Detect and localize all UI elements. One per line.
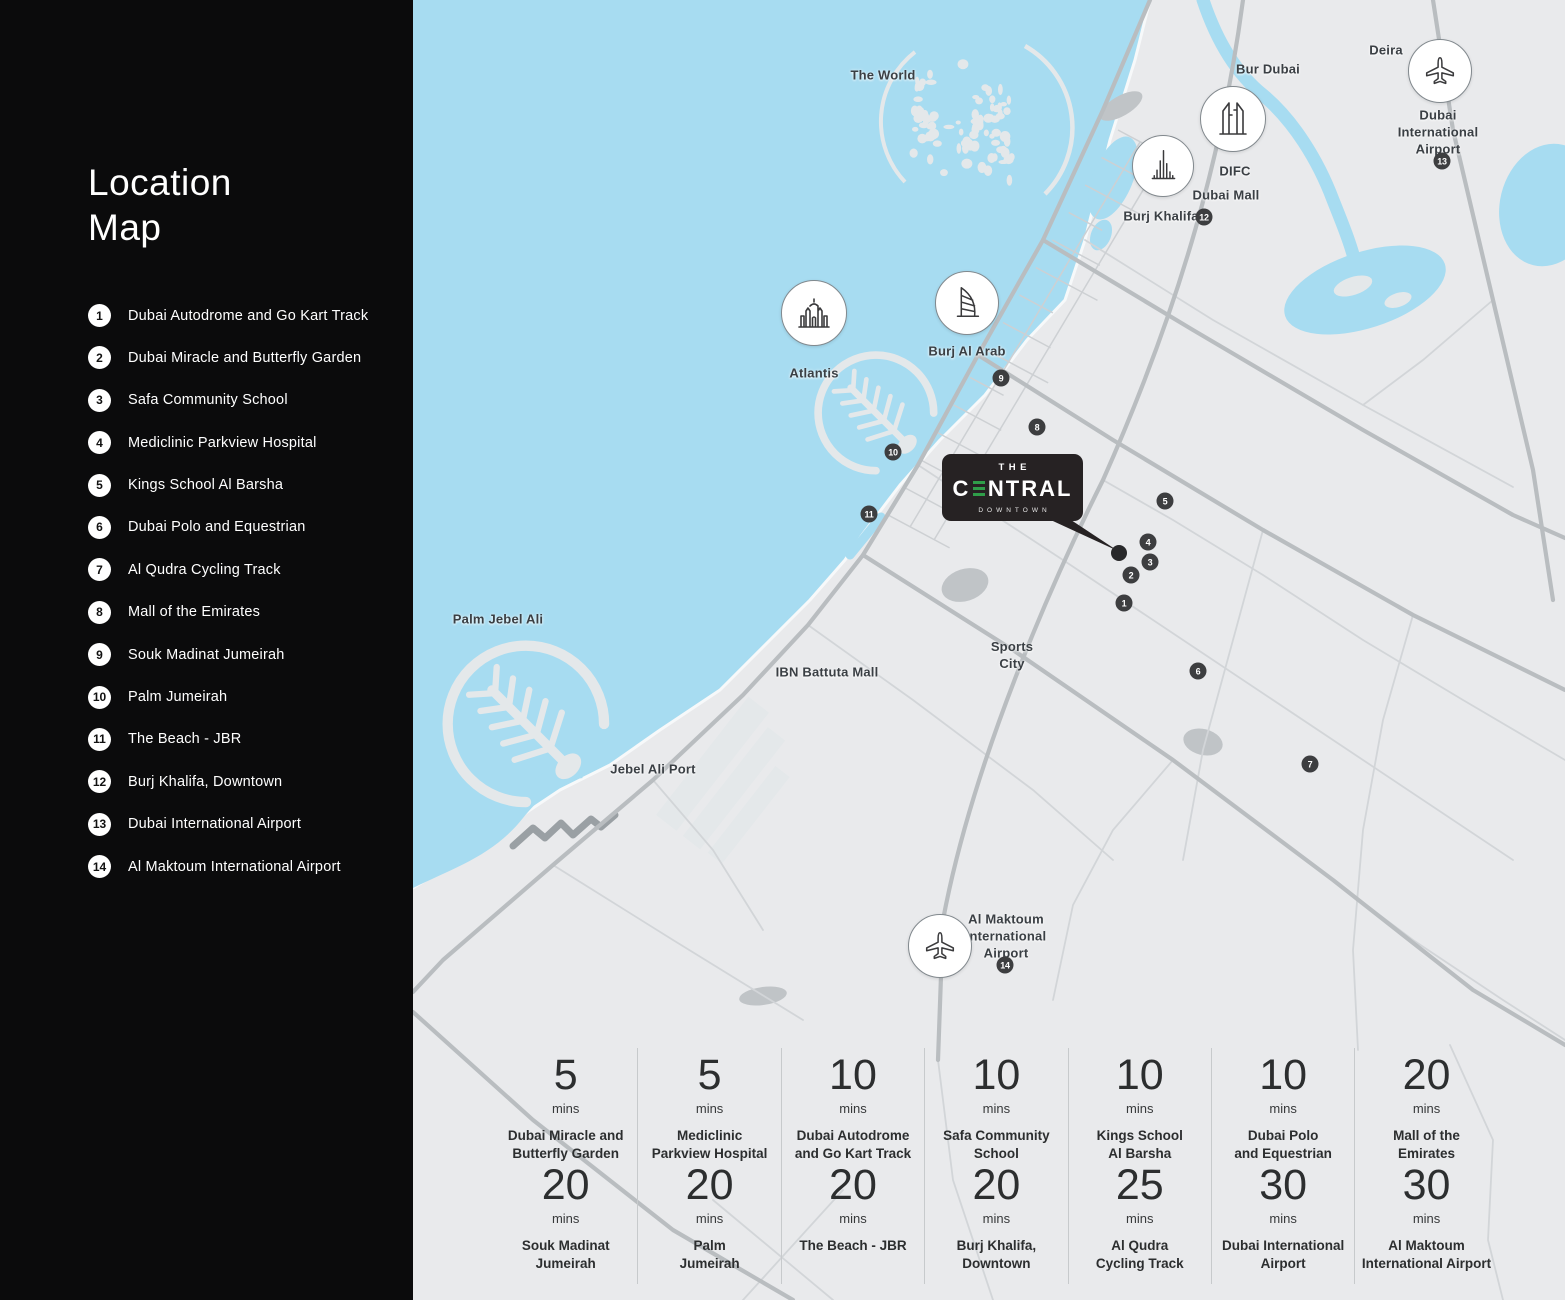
travel-time-destination: Dubai Polo and Equestrian <box>1216 1127 1350 1162</box>
legend-item: 3Safa Community School <box>88 389 368 412</box>
legend-item-number: 14 <box>88 855 111 878</box>
map-label: IBN Battuta Mall <box>776 665 879 682</box>
map-label: Jebel Ali Port <box>610 762 695 779</box>
location-map: The WorldDeiraBur DubaiDIFCDubai MallBur… <box>413 0 1565 1300</box>
map-label: Deira <box>1369 43 1403 60</box>
map-marker-7: 7 <box>1302 756 1319 773</box>
map-label: Dubai International Airport <box>1398 108 1479 159</box>
travel-time-unit: mins <box>786 1101 920 1116</box>
legend-item-number: 1 <box>88 304 111 327</box>
travel-time-value: 10 <box>786 1054 920 1097</box>
burj-al-arab-sail-icon <box>935 271 999 335</box>
travel-time-cell: 10minsKings School Al Barsha <box>1068 1048 1211 1174</box>
page: Location Map 1Dubai Autodrome and Go Kar… <box>0 0 1565 1300</box>
central-logo-downtown: DOWNTOWN <box>974 507 1050 514</box>
travel-time-unit: mins <box>1216 1101 1350 1116</box>
travel-time-unit: mins <box>642 1211 776 1226</box>
map-label: Bur Dubai <box>1236 62 1300 79</box>
legend-item-number: 12 <box>88 770 111 793</box>
project-pin-dot <box>1111 545 1127 561</box>
legend-item: 7Al Qudra Cycling Track <box>88 558 368 581</box>
central-logo-callout: THE C NTRAL DOWNTOWN <box>942 454 1083 521</box>
map-marker-9: 9 <box>993 370 1010 387</box>
atlantis-palace-icon <box>781 280 847 346</box>
travel-time-destination: Palm Jumeirah <box>642 1237 776 1272</box>
central-logo-name-post: NTRAL <box>988 476 1073 502</box>
airplane-icon <box>1408 39 1472 103</box>
legend-item-number: 13 <box>88 813 111 836</box>
travel-time-value: 5 <box>642 1054 776 1097</box>
legend-item-label: Al Maktoum International Airport <box>128 859 341 875</box>
legend-item: 9Souk Madinat Jumeirah <box>88 643 368 666</box>
legend-item-label: Mediclinic Parkview Hospital <box>128 435 317 451</box>
travel-time-unit: mins <box>498 1211 633 1226</box>
legend-item: 11The Beach - JBR <box>88 728 368 751</box>
map-label: Palm Jebel Ali <box>453 612 543 629</box>
map-marker-1: 1 <box>1116 595 1133 612</box>
difc-towers-icon <box>1200 86 1266 152</box>
travel-times-row: 20minsSouk Madinat Jumeirah20minsPalm Ju… <box>494 1158 1498 1284</box>
central-logo-name: C NTRAL <box>953 476 1073 502</box>
travel-time-destination: Mediclinic Parkview Hospital <box>642 1127 776 1162</box>
legend-item-label: Dubai International Airport <box>128 816 301 832</box>
legend-item-number: 9 <box>88 643 111 666</box>
legend-item-label: Dubai Autodrome and Go Kart Track <box>128 308 368 324</box>
travel-time-cell: 30minsAl Maktoum International Airport <box>1354 1158 1497 1284</box>
legend-item-label: Al Qudra Cycling Track <box>128 562 281 578</box>
legend-item: 1Dubai Autodrome and Go Kart Track <box>88 304 368 327</box>
legend-item-number: 3 <box>88 389 111 412</box>
travel-time-value: 20 <box>929 1164 1063 1207</box>
sidebar: Location Map 1Dubai Autodrome and Go Kar… <box>0 0 413 1300</box>
travel-time-destination: The Beach - JBR <box>786 1237 920 1255</box>
map-label: Al Maktoum International Airport <box>966 912 1047 963</box>
travel-time-destination: Souk Madinat Jumeirah <box>498 1237 633 1272</box>
legend-item: 6Dubai Polo and Equestrian <box>88 516 368 539</box>
travel-time-destination: Burj Khalifa, Downtown <box>929 1237 1063 1272</box>
map-marker-4: 4 <box>1140 534 1157 551</box>
map-label: Sports City <box>991 639 1033 673</box>
legend-item-number: 8 <box>88 601 111 624</box>
map-marker-13: 13 <box>1434 153 1451 170</box>
travel-time-unit: mins <box>642 1101 776 1116</box>
legend-item-label: Dubai Polo and Equestrian <box>128 519 306 535</box>
map-marker-6: 6 <box>1190 663 1207 680</box>
travel-times-grid: 5minsDubai Miracle and Butterfly Garden5… <box>494 1048 1498 1288</box>
travel-time-unit: mins <box>1073 1101 1207 1116</box>
map-label: Burj Khalifa <box>1123 209 1198 226</box>
travel-time-cell: 20minsSouk Madinat Jumeirah <box>494 1158 637 1284</box>
map-marker-5: 5 <box>1157 493 1174 510</box>
map-marker-11: 11 <box>861 506 878 523</box>
map-label: Dubai Mall <box>1192 188 1259 205</box>
central-logo-e-bars-icon <box>973 481 986 495</box>
travel-time-unit: mins <box>1359 1211 1493 1226</box>
legend-item-label: Souk Madinat Jumeirah <box>128 647 285 663</box>
legend-item-label: Palm Jumeirah <box>128 689 227 705</box>
travel-time-cell: 10minsDubai Polo and Equestrian <box>1211 1048 1354 1174</box>
legend-item-label: Burj Khalifa, Downtown <box>128 774 282 790</box>
travel-time-cell: 5minsMediclinic Parkview Hospital <box>637 1048 780 1174</box>
travel-time-value: 30 <box>1359 1164 1493 1207</box>
map-marker-12: 12 <box>1196 209 1213 226</box>
travel-time-unit: mins <box>1359 1101 1493 1116</box>
travel-time-value: 20 <box>642 1164 776 1207</box>
legend-item-number: 7 <box>88 558 111 581</box>
travel-time-cell: 20minsThe Beach - JBR <box>781 1158 924 1284</box>
burj-khalifa-tower-icon <box>1132 135 1194 197</box>
travel-time-destination: Dubai Autodrome and Go Kart Track <box>786 1127 920 1162</box>
travel-time-destination: Safa Community School <box>929 1127 1063 1162</box>
travel-time-unit: mins <box>1216 1211 1350 1226</box>
travel-time-cell: 30minsDubai International Airport <box>1211 1158 1354 1284</box>
legend-item-number: 10 <box>88 686 111 709</box>
travel-time-value: 10 <box>1216 1054 1350 1097</box>
travel-time-value: 5 <box>498 1054 633 1097</box>
map-label: Burj Al Arab <box>928 344 1005 361</box>
travel-time-cell: 5minsDubai Miracle and Butterfly Garden <box>494 1048 637 1174</box>
travel-time-cell: 20minsMall of the Emirates <box>1354 1048 1497 1174</box>
travel-time-destination: Mall of the Emirates <box>1359 1127 1493 1162</box>
legend-item: 2Dubai Miracle and Butterfly Garden <box>88 346 368 369</box>
legend-item: 14Al Maktoum International Airport <box>88 855 368 878</box>
map-marker-2: 2 <box>1123 567 1140 584</box>
travel-time-value: 20 <box>786 1164 920 1207</box>
map-marker-10: 10 <box>885 444 902 461</box>
travel-time-destination: Dubai Miracle and Butterfly Garden <box>498 1127 633 1162</box>
travel-time-value: 25 <box>1073 1164 1207 1207</box>
map-marker-3: 3 <box>1142 554 1159 571</box>
map-marker-14: 14 <box>997 957 1014 974</box>
travel-time-unit: mins <box>1073 1211 1207 1226</box>
legend-item: 5Kings School Al Barsha <box>88 474 368 497</box>
legend-item-label: The Beach - JBR <box>128 731 241 747</box>
travel-time-cell: 25minsAl Qudra Cycling Track <box>1068 1158 1211 1284</box>
legend-item-number: 6 <box>88 516 111 539</box>
map-marker-8: 8 <box>1029 419 1046 436</box>
legend-list: 1Dubai Autodrome and Go Kart Track2Dubai… <box>88 304 368 897</box>
travel-time-destination: Al Qudra Cycling Track <box>1073 1237 1207 1272</box>
airplane-icon <box>908 914 972 978</box>
travel-time-unit: mins <box>929 1101 1063 1116</box>
legend-item: 10Palm Jumeirah <box>88 686 368 709</box>
travel-time-destination: Dubai International Airport <box>1216 1237 1350 1272</box>
legend-item-label: Safa Community School <box>128 392 288 408</box>
travel-time-unit: mins <box>786 1211 920 1226</box>
travel-time-destination: Kings School Al Barsha <box>1073 1127 1207 1162</box>
legend-item-number: 5 <box>88 474 111 497</box>
travel-time-value: 10 <box>1073 1054 1207 1097</box>
travel-time-unit: mins <box>498 1101 633 1116</box>
travel-time-value: 10 <box>929 1054 1063 1097</box>
legend-item-label: Kings School Al Barsha <box>128 477 283 493</box>
legend-item-label: Mall of the Emirates <box>128 604 260 620</box>
central-logo-name-pre: C <box>953 476 971 502</box>
legend-item-label: Dubai Miracle and Butterfly Garden <box>128 350 361 366</box>
legend-item: 8Mall of the Emirates <box>88 601 368 624</box>
legend-item: 12Burj Khalifa, Downtown <box>88 770 368 793</box>
travel-time-value: 20 <box>498 1164 633 1207</box>
legend-item: 4Mediclinic Parkview Hospital <box>88 431 368 454</box>
legend-item-number: 11 <box>88 728 111 751</box>
legend-item: 13Dubai International Airport <box>88 813 368 836</box>
travel-time-value: 20 <box>1359 1054 1493 1097</box>
map-label: DIFC <box>1219 164 1250 181</box>
travel-time-value: 30 <box>1216 1164 1350 1207</box>
central-logo-the: THE <box>994 462 1031 473</box>
map-label: Atlantis <box>789 366 838 383</box>
travel-time-destination: Al Maktoum International Airport <box>1359 1237 1493 1272</box>
travel-time-cell: 10minsSafa Community School <box>924 1048 1067 1174</box>
travel-time-cell: 10minsDubai Autodrome and Go Kart Track <box>781 1048 924 1174</box>
map-label: The World <box>850 68 915 85</box>
travel-time-unit: mins <box>929 1211 1063 1226</box>
travel-time-cell: 20minsPalm Jumeirah <box>637 1158 780 1284</box>
travel-time-cell: 20minsBurj Khalifa, Downtown <box>924 1158 1067 1284</box>
travel-times-row: 5minsDubai Miracle and Butterfly Garden5… <box>494 1048 1498 1174</box>
page-title: Location Map <box>88 160 232 250</box>
legend-item-number: 2 <box>88 346 111 369</box>
legend-item-number: 4 <box>88 431 111 454</box>
